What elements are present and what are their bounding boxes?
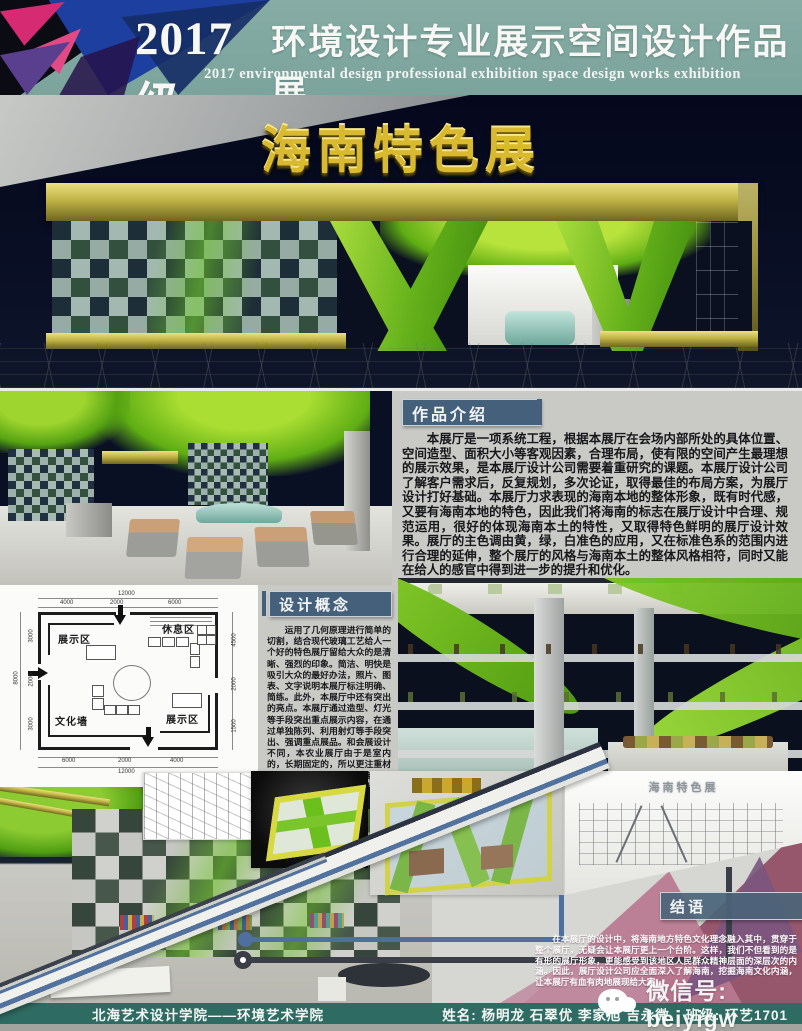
culture-books [310, 913, 344, 928]
culture-round-table [338, 963, 430, 987]
school-name: 北海艺术设计学院——环境艺术学院 [92, 1004, 324, 1024]
wireframe-gold-crates [412, 778, 481, 793]
hero-tiled-floor [0, 343, 802, 388]
plan-seat [190, 656, 200, 668]
plan-seat [162, 637, 175, 647]
plan-entrance-arrow-top [114, 605, 126, 625]
lounge-seat [126, 519, 180, 557]
plan-wall [130, 612, 218, 615]
plan-shelf [208, 695, 210, 733]
intro-body-text: 本展厅是一项系统工程，根据本展厅在会场内部所处的具体位置、空间造型、面积大小等客… [402, 432, 788, 578]
plan-seat [148, 637, 161, 647]
lounge-counter-gray [66, 503, 112, 537]
lounge-teal-counter [196, 503, 282, 523]
page-title: 2017级环境设计专业展示空间设计作品展 [135, 12, 790, 70]
plan-culture-wall [48, 735, 148, 737]
intro-heading: 作品介绍 [402, 399, 541, 426]
lounge-seat [185, 537, 244, 579]
concept-panel: 设计概念 运用了几何原理进行简单的切割，结合现代玻璃工艺给人一个好的特色展厅留给… [258, 585, 398, 787]
dim-right-seg: 4500 [232, 633, 238, 646]
plan-entrance-arrow-bottom [142, 727, 154, 747]
plan-wall [38, 612, 116, 615]
dim-right-seg: 2000 [232, 677, 238, 690]
plan-seat [206, 625, 216, 635]
booth-right-glass-wall [696, 221, 738, 343]
plan-label-culture-wall: 文化墙 [55, 713, 88, 728]
plan-seat [206, 635, 216, 645]
plan-shelf [48, 623, 50, 655]
dim-left-seg: 3000 [29, 629, 35, 642]
dim-right-seg: 1500 [232, 719, 238, 732]
decor-shape [482, 844, 513, 870]
interior-render-lounge [0, 391, 392, 585]
shelves-products-row-2 [408, 692, 788, 702]
lounge-checker-wall-center [188, 443, 268, 505]
plan-hatch [150, 617, 212, 618]
lounge-gold-sign [102, 451, 178, 464]
decor-shape [409, 848, 444, 876]
concept-heading: 设计概念 [269, 591, 392, 617]
conclusion-heading: 结语 [660, 892, 802, 920]
plan-wall [215, 693, 218, 750]
plan-culture-wall [48, 685, 50, 737]
intro-panel: 作品介绍 本展厅是一项系统工程，根据本展厅在会场内部所处的具体位置、空间造型、面… [392, 391, 802, 585]
dim-top-seg: 6000 [168, 600, 181, 606]
plan-center-circle [113, 665, 151, 701]
dim-line [38, 767, 218, 768]
lounge-seat [310, 511, 358, 545]
plan-label-rest: 休息区 [162, 621, 195, 636]
plan-shelf [160, 731, 210, 733]
plan-display [92, 698, 104, 710]
decor-shape [240, 957, 246, 963]
dim-bottom-seg: 4000 [170, 758, 183, 764]
floor-plan: 12000 4000 2000 6000 [0, 585, 259, 787]
dim-line [38, 598, 218, 599]
plan-table [86, 645, 116, 660]
intro-heading-bar [537, 399, 542, 425]
plan-wall [158, 747, 218, 750]
booth-top-gold-beam [46, 183, 758, 221]
booth-signage-gold-text: 海南特色展 [0, 111, 802, 183]
dim-left-seg: 2000 [29, 673, 35, 686]
plan-shelf [48, 623, 114, 625]
plan-wall [38, 747, 130, 750]
shelves-products-row-1 [408, 644, 788, 654]
wechat-icon [598, 989, 636, 1017]
connector-node-blue [238, 932, 253, 947]
booth-green-column-left [330, 221, 488, 351]
dim-line [38, 607, 218, 608]
plan-seat [176, 637, 189, 647]
booth-left-green-swoosh [52, 221, 337, 343]
wechat-id-text: 微信号: beiyigw [646, 972, 802, 1031]
exhibition-poster: 2017级环境设计专业展示空间设计作品展 2017 environmental … [0, 0, 802, 1031]
plan-display [128, 705, 140, 715]
wechat-watermark: 微信号: beiyigw [598, 972, 802, 1031]
concept-heading-bar [262, 591, 266, 616]
main-exterior-render: 海南特色展 [0, 95, 802, 388]
dim-left-total: 8000 [14, 671, 20, 684]
decor-shape [660, 806, 687, 863]
plan-label-display-top: 展示区 [58, 631, 91, 646]
lounge-green-ceiling-2 [0, 391, 130, 453]
dim-left-seg: 3000 [29, 717, 35, 730]
dim-bottom-total: 12000 [118, 769, 135, 775]
plan-wall [38, 680, 41, 750]
dim-bottom-seg: 2000 [118, 758, 131, 764]
elevation-sign-text: 海南特色展 [565, 779, 802, 795]
decor-shape [618, 997, 636, 1012]
plan-wall [215, 612, 218, 678]
plan-display [116, 705, 128, 715]
dim-line [20, 612, 21, 750]
plan-label-display-bottom: 展示区 [166, 711, 199, 726]
dim-top-seg: 4000 [60, 600, 73, 606]
page-subtitle: 2017 environmental design professional e… [150, 66, 795, 83]
plan-table [172, 693, 202, 708]
lounge-seat [254, 527, 309, 567]
plan-wall [38, 612, 41, 664]
poster-header: 2017级环境设计专业展示空间设计作品展 2017 environmental … [0, 0, 802, 95]
structural-sketch-card [143, 772, 253, 840]
bottom-collage: 海南特色展 结语 在本展厅的设计中，将海南地方特色文化理念融入其中，贯穿于整个展… [0, 787, 802, 1003]
plan-display [92, 685, 104, 697]
dim-bottom-seg: 6000 [62, 758, 75, 764]
decor-shape [616, 806, 643, 863]
dim-top-total: 12000 [118, 591, 135, 597]
culture-stool [318, 977, 346, 1001]
shelves-fruit-display [623, 736, 773, 748]
connector-node-dark [234, 951, 252, 969]
plan-display [104, 705, 116, 715]
connector-line-blue [248, 937, 564, 942]
